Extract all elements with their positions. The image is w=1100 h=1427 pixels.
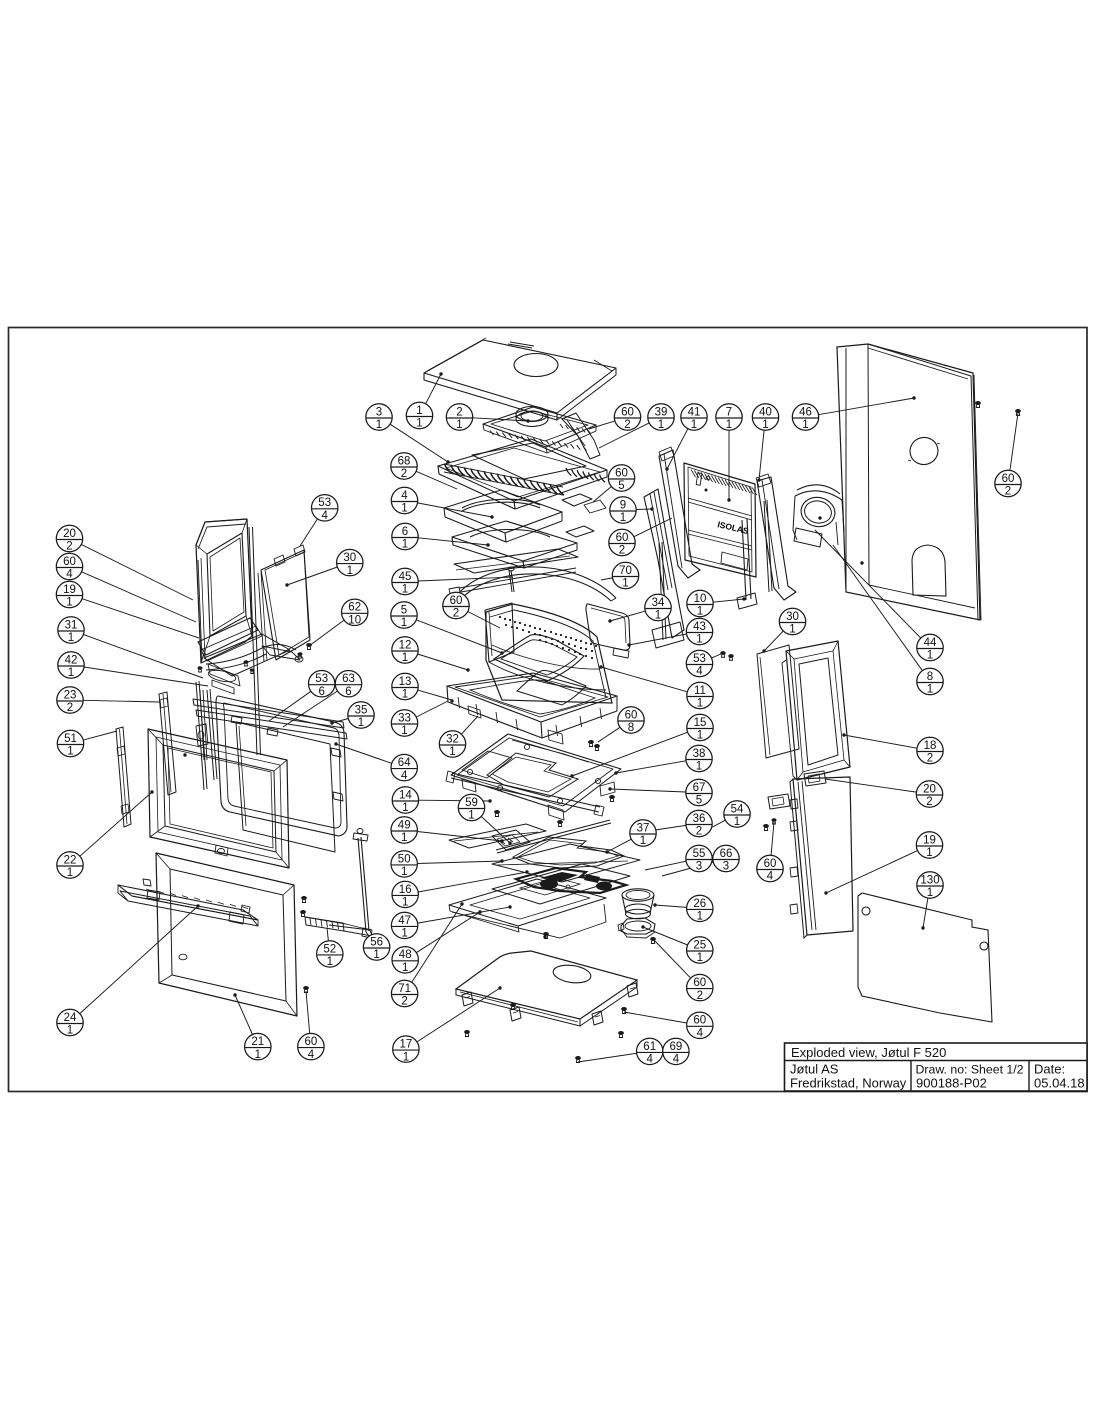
svg-text:Date:: Date: xyxy=(1034,1062,1065,1077)
svg-text:1: 1 xyxy=(67,1025,73,1037)
svg-text:2: 2 xyxy=(401,468,407,480)
svg-text:1: 1 xyxy=(449,746,455,758)
svg-text:2: 2 xyxy=(1005,486,1011,498)
svg-text:30: 30 xyxy=(343,552,356,564)
svg-text:1: 1 xyxy=(697,606,703,618)
svg-text:67: 67 xyxy=(693,782,706,794)
svg-text:3: 3 xyxy=(696,861,702,873)
svg-text:41: 41 xyxy=(688,406,701,418)
svg-text:1: 1 xyxy=(402,689,408,701)
svg-text:1: 1 xyxy=(401,832,407,844)
svg-text:6: 6 xyxy=(318,686,324,698)
svg-text:60: 60 xyxy=(615,467,628,479)
svg-text:1: 1 xyxy=(697,698,703,710)
svg-text:60: 60 xyxy=(625,709,638,721)
svg-text:69: 69 xyxy=(670,1041,683,1053)
svg-text:71: 71 xyxy=(398,983,411,995)
svg-text:1: 1 xyxy=(927,650,933,662)
svg-text:51: 51 xyxy=(64,733,77,745)
svg-text:1: 1 xyxy=(401,503,407,515)
svg-text:35: 35 xyxy=(355,704,368,716)
svg-text:Exploded view, Jøtul F 520: Exploded view, Jøtul F 520 xyxy=(791,1045,946,1060)
svg-text:60: 60 xyxy=(693,1015,706,1027)
svg-text:50: 50 xyxy=(398,853,411,865)
svg-text:1: 1 xyxy=(327,956,333,968)
svg-text:2: 2 xyxy=(926,796,932,808)
svg-text:32: 32 xyxy=(446,733,459,745)
svg-text:1: 1 xyxy=(401,928,407,940)
svg-text:1: 1 xyxy=(68,632,74,644)
svg-text:1: 1 xyxy=(402,539,408,551)
svg-text:16: 16 xyxy=(399,884,412,896)
svg-text:1: 1 xyxy=(456,419,462,431)
svg-text:60: 60 xyxy=(63,556,76,568)
svg-text:1: 1 xyxy=(403,1051,409,1063)
svg-text:20: 20 xyxy=(63,528,76,540)
svg-text:1: 1 xyxy=(255,1049,261,1061)
svg-text:48: 48 xyxy=(399,949,412,961)
svg-text:52: 52 xyxy=(323,943,336,955)
svg-text:1: 1 xyxy=(402,584,408,596)
svg-text:1: 1 xyxy=(697,952,703,964)
svg-text:53: 53 xyxy=(318,497,331,509)
svg-text:1: 1 xyxy=(68,667,74,679)
svg-text:1: 1 xyxy=(762,419,768,431)
svg-text:4: 4 xyxy=(401,490,408,502)
svg-text:1: 1 xyxy=(802,419,808,431)
svg-text:25: 25 xyxy=(693,939,706,951)
svg-text:4: 4 xyxy=(767,871,774,883)
svg-text:1: 1 xyxy=(691,419,697,431)
svg-text:2: 2 xyxy=(401,996,407,1008)
svg-text:60: 60 xyxy=(616,532,629,544)
svg-text:56: 56 xyxy=(370,936,383,948)
svg-text:4: 4 xyxy=(66,569,73,581)
svg-text:1: 1 xyxy=(468,810,474,822)
svg-text:4: 4 xyxy=(673,1054,680,1066)
svg-text:7: 7 xyxy=(726,406,732,418)
svg-text:55: 55 xyxy=(693,848,706,860)
svg-text:1: 1 xyxy=(401,617,407,629)
svg-text:45: 45 xyxy=(399,571,412,583)
svg-text:1: 1 xyxy=(401,725,407,737)
svg-text:15: 15 xyxy=(694,717,707,729)
svg-text:10: 10 xyxy=(348,615,361,627)
svg-text:60: 60 xyxy=(450,595,463,607)
svg-text:1: 1 xyxy=(67,867,73,879)
svg-text:36: 36 xyxy=(693,813,706,825)
svg-text:4: 4 xyxy=(697,1028,704,1040)
svg-text:1: 1 xyxy=(358,717,364,729)
svg-text:1: 1 xyxy=(726,419,732,431)
svg-text:8: 8 xyxy=(628,722,634,734)
svg-text:70: 70 xyxy=(619,565,632,577)
svg-text:5: 5 xyxy=(618,480,624,492)
svg-text:24: 24 xyxy=(64,1012,77,1024)
svg-text:3: 3 xyxy=(723,861,729,873)
svg-text:4: 4 xyxy=(696,666,703,678)
svg-text:4: 4 xyxy=(321,510,328,522)
svg-text:39: 39 xyxy=(655,406,668,418)
svg-text:1: 1 xyxy=(373,949,379,961)
svg-text:12: 12 xyxy=(399,639,412,651)
svg-text:66: 66 xyxy=(720,848,733,860)
svg-text:1: 1 xyxy=(376,419,382,431)
svg-text:59: 59 xyxy=(465,797,478,809)
svg-text:2: 2 xyxy=(624,419,630,431)
svg-text:53: 53 xyxy=(693,653,706,665)
svg-text:1: 1 xyxy=(789,624,795,636)
svg-text:11: 11 xyxy=(694,685,706,697)
svg-text:60: 60 xyxy=(305,1036,318,1048)
svg-text:18: 18 xyxy=(924,740,937,752)
svg-text:22: 22 xyxy=(64,854,77,866)
svg-text:60: 60 xyxy=(693,977,706,989)
svg-text:34: 34 xyxy=(652,597,665,609)
svg-text:1: 1 xyxy=(696,761,702,773)
svg-text:64: 64 xyxy=(398,757,411,769)
svg-text:1: 1 xyxy=(67,746,73,758)
svg-text:4: 4 xyxy=(401,770,408,782)
svg-text:23: 23 xyxy=(64,689,77,701)
svg-text:2: 2 xyxy=(697,990,703,1002)
svg-text:13: 13 xyxy=(399,676,412,688)
svg-text:4: 4 xyxy=(646,1054,653,1066)
svg-text:4: 4 xyxy=(308,1049,315,1061)
svg-text:9: 9 xyxy=(620,499,626,511)
svg-text:61: 61 xyxy=(643,1041,656,1053)
svg-text:42: 42 xyxy=(65,654,78,666)
svg-text:2: 2 xyxy=(696,826,702,838)
svg-text:1: 1 xyxy=(697,911,703,923)
svg-text:21: 21 xyxy=(251,1036,264,1048)
svg-text:1: 1 xyxy=(402,962,408,974)
svg-text:1: 1 xyxy=(402,802,408,814)
svg-text:1: 1 xyxy=(640,835,646,847)
svg-text:130: 130 xyxy=(920,874,939,886)
svg-text:30: 30 xyxy=(786,611,799,623)
svg-text:2: 2 xyxy=(456,406,462,418)
svg-text:46: 46 xyxy=(799,406,812,418)
svg-text:Draw. no: Sheet 1/2: Draw. no: Sheet 1/2 xyxy=(916,1063,1024,1077)
svg-text:1: 1 xyxy=(696,634,702,646)
svg-text:6: 6 xyxy=(345,686,351,698)
svg-text:6: 6 xyxy=(402,526,408,538)
svg-text:1: 1 xyxy=(926,847,932,859)
svg-text:60: 60 xyxy=(764,858,777,870)
svg-text:2: 2 xyxy=(619,545,625,557)
svg-text:3: 3 xyxy=(376,406,382,418)
svg-text:26: 26 xyxy=(693,898,706,910)
svg-text:1: 1 xyxy=(658,419,664,431)
svg-text:1: 1 xyxy=(622,578,628,590)
svg-text:63: 63 xyxy=(342,673,355,685)
svg-text:1: 1 xyxy=(416,418,422,430)
svg-text:38: 38 xyxy=(693,748,706,760)
svg-text:1: 1 xyxy=(655,610,661,622)
svg-text:60: 60 xyxy=(621,406,634,418)
svg-text:40: 40 xyxy=(759,406,772,418)
svg-text:20: 20 xyxy=(923,783,936,795)
svg-text:33: 33 xyxy=(398,712,411,724)
svg-text:19: 19 xyxy=(63,584,76,596)
svg-text:1: 1 xyxy=(402,652,408,664)
svg-text:1: 1 xyxy=(347,565,353,577)
svg-text:5: 5 xyxy=(401,604,407,616)
svg-text:47: 47 xyxy=(398,915,411,927)
svg-text:1: 1 xyxy=(402,897,408,909)
svg-text:1: 1 xyxy=(401,866,407,878)
svg-text:60: 60 xyxy=(1002,473,1015,485)
svg-text:14: 14 xyxy=(399,789,412,801)
svg-text:2: 2 xyxy=(66,541,72,553)
svg-text:1: 1 xyxy=(416,405,422,417)
svg-text:2: 2 xyxy=(67,702,73,714)
svg-text:31: 31 xyxy=(65,619,78,631)
svg-text:05.04.18: 05.04.18 xyxy=(1034,1076,1085,1091)
svg-text:1: 1 xyxy=(734,816,740,828)
svg-text:53: 53 xyxy=(315,673,328,685)
svg-text:62: 62 xyxy=(348,602,361,614)
svg-text:68: 68 xyxy=(398,455,411,467)
svg-text:5: 5 xyxy=(696,795,702,807)
svg-text:43: 43 xyxy=(693,621,706,633)
svg-text:54: 54 xyxy=(731,803,744,815)
svg-text:17: 17 xyxy=(400,1039,413,1051)
svg-text:1: 1 xyxy=(620,512,626,524)
svg-text:8: 8 xyxy=(927,671,933,683)
svg-text:49: 49 xyxy=(398,819,411,831)
svg-text:900188-P02: 900188-P02 xyxy=(916,1076,987,1091)
svg-text:1: 1 xyxy=(927,684,933,696)
svg-text:1: 1 xyxy=(927,887,933,899)
svg-text:1: 1 xyxy=(697,730,703,742)
svg-text:37: 37 xyxy=(637,822,650,834)
svg-text:1: 1 xyxy=(66,597,72,609)
svg-text:10: 10 xyxy=(694,593,707,605)
svg-text:Fredrikstad, Norway: Fredrikstad, Norway xyxy=(790,1076,907,1091)
svg-text:Jøtul AS: Jøtul AS xyxy=(790,1062,839,1077)
svg-text:44: 44 xyxy=(924,637,937,649)
svg-text:19: 19 xyxy=(923,834,936,846)
svg-text:2: 2 xyxy=(453,608,459,620)
svg-text:2: 2 xyxy=(927,753,933,765)
